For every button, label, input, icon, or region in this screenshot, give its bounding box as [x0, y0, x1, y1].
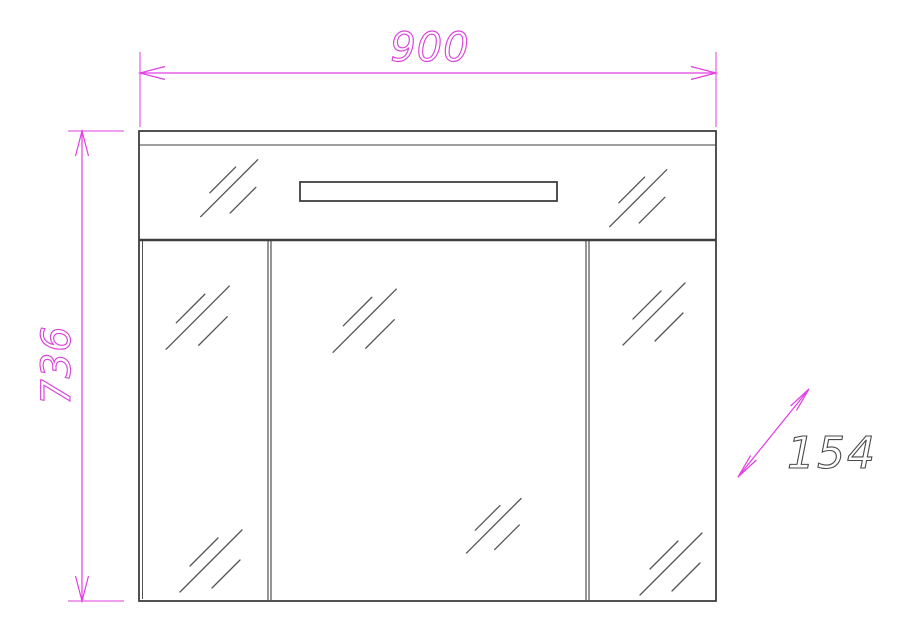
height-dimension-label: 736	[34, 325, 80, 404]
mirror-hatch-right-door-upper	[623, 283, 685, 345]
cabinet-front-view-drawing: 900 736 154	[0, 0, 900, 636]
technical-drawing-canvas: 900 736 154	[0, 0, 900, 636]
mirror-hatch-left-door-upper	[166, 286, 229, 349]
dimension-depth: 154	[738, 389, 877, 479]
mirror-hatch-right-door-lower	[640, 533, 702, 595]
light-fixture	[300, 182, 557, 201]
mirror-hatch-center-door-upper	[333, 289, 396, 352]
cabinet-outline	[139, 131, 716, 601]
dimension-height: 736	[34, 131, 124, 601]
width-dimension-label: 900	[390, 25, 469, 71]
depth-dimension-label: 154	[787, 428, 877, 479]
mirror-hatch-center-door-lower	[467, 499, 522, 554]
mirror-hatch-left-door-lower	[180, 530, 242, 592]
dimension-width: 900	[140, 25, 716, 127]
mirror-hatches	[166, 160, 702, 595]
mirror-hatch-top-panel-right	[610, 170, 667, 227]
mirror-hatch-top-panel-left	[201, 160, 258, 217]
